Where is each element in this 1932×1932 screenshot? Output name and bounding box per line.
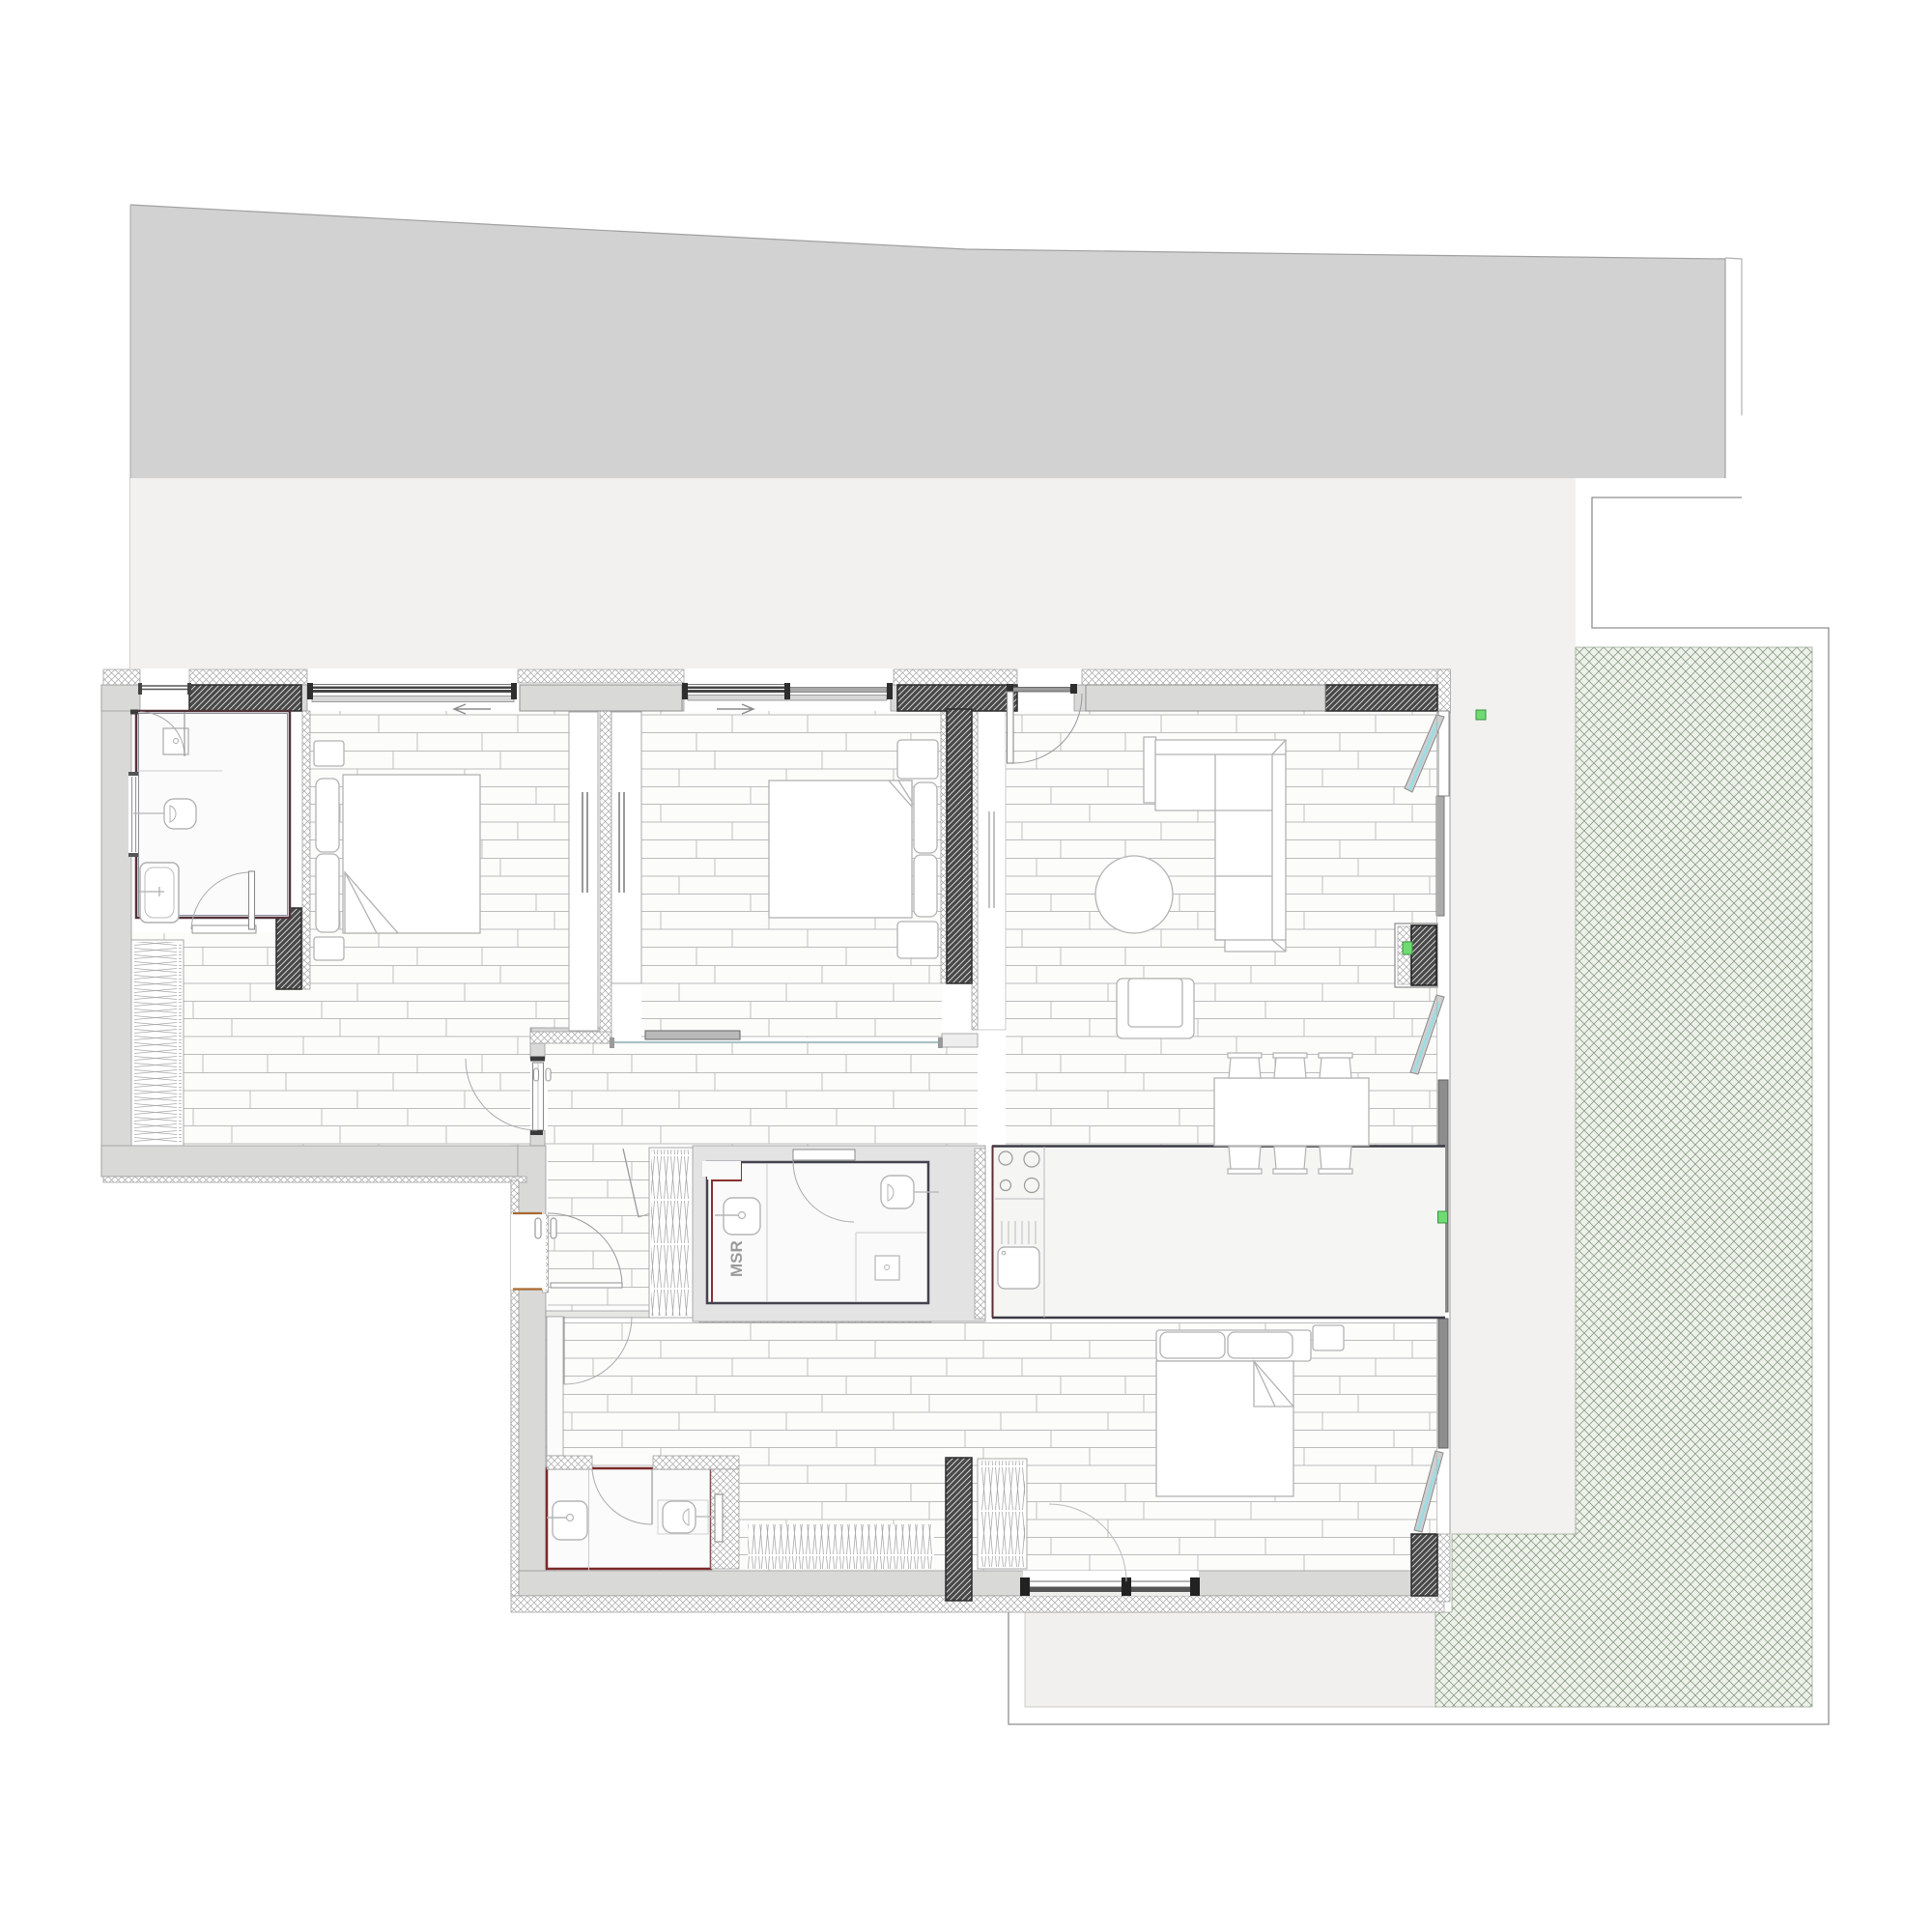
- svg-text:MSR: MSR: [727, 1240, 746, 1277]
